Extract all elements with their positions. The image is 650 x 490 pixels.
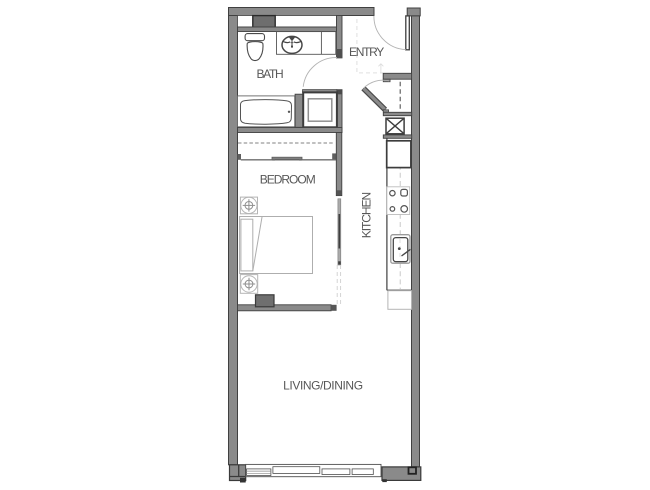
svg-text:ENTRY: ENTRY [349,45,384,59]
svg-text:LIVING/DINING: LIVING/DINING [283,378,363,392]
svg-text:BATH: BATH [256,67,283,81]
svg-text:KITCHEN: KITCHEN [359,193,373,239]
svg-text:BEDROOM: BEDROOM [260,172,316,186]
